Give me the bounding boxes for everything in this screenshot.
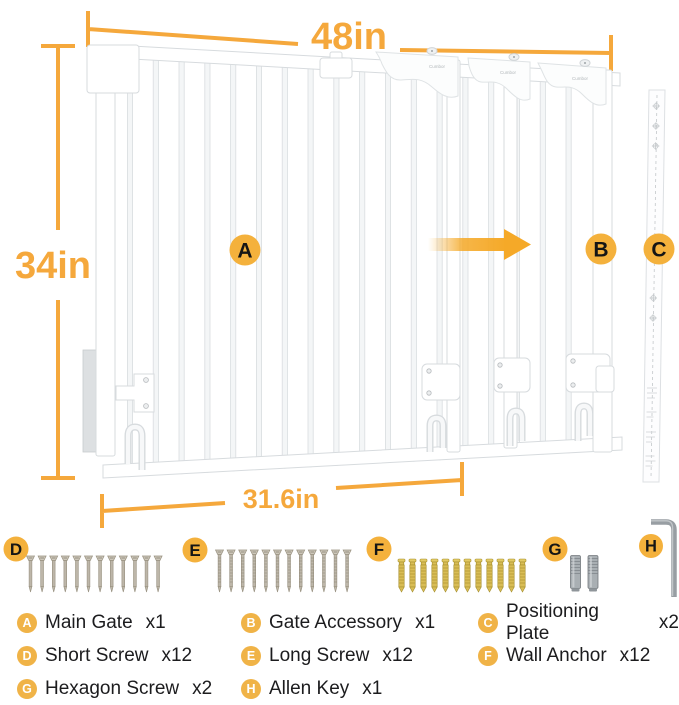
legend-item-long-screw: E Long Screw x12 xyxy=(241,645,478,667)
legend-badge: E xyxy=(241,646,261,666)
wall-plate xyxy=(83,350,97,452)
brand-logo-text: Cumbor xyxy=(500,70,517,75)
long-screw xyxy=(216,550,224,592)
short-screws-group xyxy=(27,556,163,592)
product-diagram: 48in 34in 31.6in xyxy=(0,0,679,705)
wall-anchor xyxy=(453,559,460,592)
hardware-row: D E F G H xyxy=(4,521,675,597)
gate-bar xyxy=(179,54,184,474)
svg-text:F: F xyxy=(374,540,384,559)
short-screw xyxy=(85,556,93,592)
legend-item-short-screw: D Short Screw x12 xyxy=(17,645,241,667)
gate-bar xyxy=(437,68,442,460)
brand-logo-text: Cumbor xyxy=(572,76,589,81)
legend-item-gate-accessory: B Gate Accessory x1 xyxy=(241,612,478,634)
badge-main-gate: A xyxy=(230,235,261,266)
legend-badge: A xyxy=(17,613,37,633)
legend-label: Hexagon Screw xyxy=(45,678,179,700)
legend-label: Main Gate xyxy=(45,612,133,634)
badge-wall-anchors: F xyxy=(367,537,392,562)
badge-allen-key: H xyxy=(639,534,663,558)
long-screw xyxy=(285,550,293,592)
wall-anchor xyxy=(409,559,416,592)
gate-bar xyxy=(463,69,468,458)
legend-count: x2 xyxy=(659,612,679,634)
legend-count: x1 xyxy=(362,678,382,700)
main-gate-illustration: Cumbor Cumbor Cumbor xyxy=(83,45,622,478)
badge-positioning-plate: C xyxy=(644,234,675,265)
legend-badge: G xyxy=(17,679,37,699)
gate-bar xyxy=(256,58,261,470)
badge-hexagon-screws: G xyxy=(543,537,568,562)
hexagon-screws-group xyxy=(571,556,599,592)
long-screw xyxy=(343,550,351,592)
legend-count: x12 xyxy=(620,645,651,667)
gate-bar xyxy=(308,61,313,467)
short-screw xyxy=(38,556,46,592)
short-screw xyxy=(108,556,116,592)
wall-anchor xyxy=(486,559,493,592)
legend-badge: D xyxy=(17,646,37,666)
wall-anchor xyxy=(497,559,504,592)
legend-badge: B xyxy=(241,613,261,633)
short-screw xyxy=(50,556,58,592)
gate-bar xyxy=(360,64,365,464)
hexagon-screw xyxy=(571,556,581,592)
long-screws-group xyxy=(216,550,352,592)
wall-anchor xyxy=(442,559,449,592)
wall-anchor xyxy=(431,559,438,592)
short-screw xyxy=(154,556,162,592)
dimension-height-label: 34in xyxy=(15,245,91,287)
long-screw xyxy=(308,550,316,592)
gate-bar xyxy=(205,55,210,472)
short-screw xyxy=(119,556,127,592)
legend-count: x12 xyxy=(382,645,413,667)
short-screw xyxy=(73,556,81,592)
hexagon-screw xyxy=(588,556,598,592)
legend-label: Short Screw xyxy=(45,645,148,667)
wall-anchor xyxy=(475,559,482,592)
legend-count: x1 xyxy=(146,612,166,634)
legend-label: Long Screw xyxy=(269,645,369,667)
legend-badge: C xyxy=(478,613,498,633)
svg-text:G: G xyxy=(548,540,561,559)
long-screw xyxy=(250,550,258,592)
legend-item-main-gate: A Main Gate x1 xyxy=(17,612,241,634)
legend-count: x2 xyxy=(192,678,212,700)
long-screw xyxy=(320,550,328,592)
legend-badge: F xyxy=(478,646,498,666)
legend-badge: H xyxy=(241,679,261,699)
badge-long-screws: E xyxy=(183,538,208,563)
wall-anchor xyxy=(508,559,515,592)
gate-bar xyxy=(411,66,416,461)
long-screw xyxy=(239,550,247,592)
legend-label: Allen Key xyxy=(269,678,349,700)
legend-count: x12 xyxy=(161,645,192,667)
parts-legend: A Main Gate x1 B Gate Accessory x1 C Pos… xyxy=(0,612,679,700)
legend-label: Gate Accessory xyxy=(269,612,402,634)
legend-item-allen-key: H Allen Key x1 xyxy=(241,678,478,700)
svg-text:C: C xyxy=(651,239,666,262)
long-screw xyxy=(227,550,235,592)
legend-label: Wall Anchor xyxy=(506,645,607,667)
allen-key xyxy=(651,521,674,597)
short-screw xyxy=(143,556,151,592)
wall-anchor xyxy=(398,559,405,592)
top-left-bracket xyxy=(87,45,139,93)
wall-anchor xyxy=(420,559,427,592)
legend-item-wall-anchor: F Wall Anchor x12 xyxy=(478,645,679,667)
legend-item-positioning-plate: C Positioning Plate x2 xyxy=(478,612,679,634)
short-screw xyxy=(61,556,69,592)
long-screw xyxy=(332,550,340,592)
gate-bar xyxy=(282,59,287,468)
short-screw xyxy=(96,556,104,592)
gate-bar xyxy=(334,62,339,465)
gate-bar xyxy=(566,75,571,453)
svg-text:H: H xyxy=(645,538,657,556)
gate-bar xyxy=(540,74,545,455)
svg-text:E: E xyxy=(189,541,200,560)
svg-text:B: B xyxy=(593,239,608,262)
badge-short-screws: D xyxy=(4,537,29,562)
gate-bar xyxy=(385,65,390,463)
wall-anchors-group xyxy=(398,559,526,592)
dimension-height-34: 34in xyxy=(15,46,91,478)
long-screw xyxy=(262,550,270,592)
long-screw xyxy=(274,550,282,592)
legend-count: x1 xyxy=(415,612,435,634)
long-screw xyxy=(297,550,305,592)
svg-text:D: D xyxy=(10,540,22,559)
short-screw xyxy=(131,556,139,592)
left-post xyxy=(96,50,115,456)
gate-bar xyxy=(127,51,132,477)
brand-logo-text: Cumbor xyxy=(429,64,446,69)
positioning-plate xyxy=(643,90,665,482)
legend-item-hexagon-screw: G Hexagon Screw x2 xyxy=(17,678,241,700)
dimension-bottom-label: 31.6in xyxy=(243,484,320,514)
legend-label: Positioning Plate xyxy=(506,601,646,645)
short-screw xyxy=(27,556,35,592)
wall-anchor xyxy=(464,559,471,592)
gate-bar xyxy=(489,71,494,457)
svg-text:A: A xyxy=(237,240,252,263)
wall-anchor xyxy=(519,559,526,592)
gate-bar xyxy=(231,57,236,471)
badge-gate-accessory: B xyxy=(586,234,617,265)
